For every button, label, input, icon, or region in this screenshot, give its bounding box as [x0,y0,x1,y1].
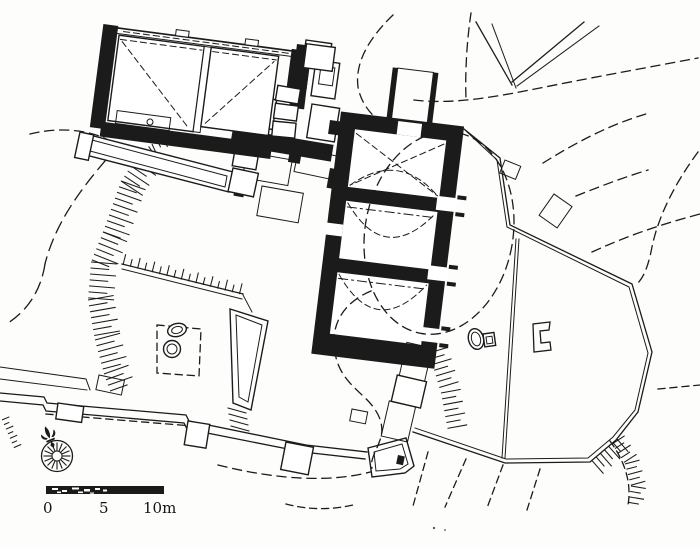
basin-and-well [157,321,201,376]
scale-bar: 0 5 10m [43,486,176,517]
wall-buttress [184,421,209,448]
window-embrasure [436,196,458,212]
east-cell [274,103,299,121]
staircase [257,186,304,223]
compass-spokes [44,443,71,470]
site-plan-figure: 0 5 10m [0,0,700,549]
scale-label-0: 0 [43,499,53,517]
west-courtyard [96,264,268,431]
wall-buttress [56,403,84,422]
left-edge-hatching [2,417,21,448]
hearth-feature [533,322,551,352]
site-plan-page: 0 5 10m [0,0,700,549]
east-cell [275,85,300,104]
terrace-features [466,160,572,352]
ruined-wall-top-right [476,22,599,88]
vaulted-room [348,129,446,198]
scale-label-5: 5 [99,499,109,517]
southeast-contour-hatching [612,436,646,504]
wall-postern [350,409,368,424]
wall-remnant [539,194,572,228]
east-cell [272,121,296,138]
hall-room [201,47,279,135]
northeast-tower-annex [303,44,335,72]
wall-bastion [368,438,414,477]
scale-label-10m: 10m [143,499,176,517]
window-embrasure [427,265,449,281]
vaulted-room [339,201,437,270]
tower-stair-top [386,67,438,124]
hall-room [108,35,204,131]
garden-ramp [228,309,268,431]
wall-buttress [281,442,314,475]
window-embrasure [420,327,442,343]
compass-rose [38,424,72,472]
